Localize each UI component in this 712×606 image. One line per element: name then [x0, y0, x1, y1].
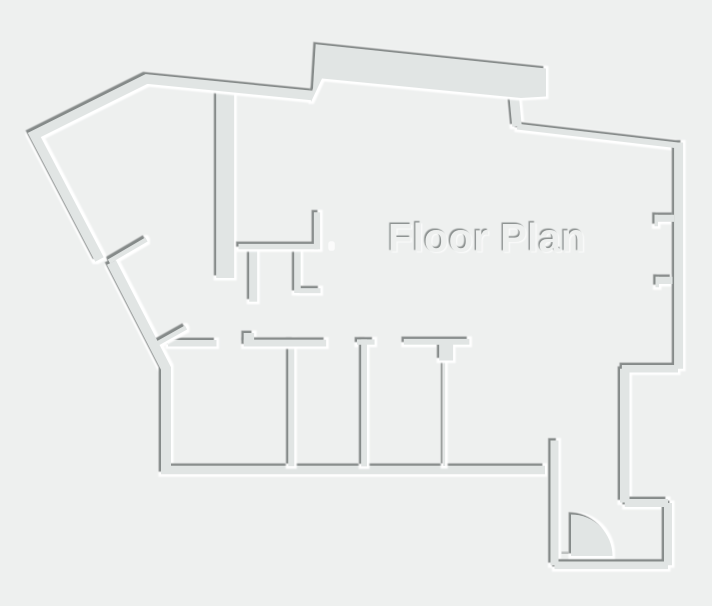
svg-text:Floor Plan: Floor Plan	[388, 217, 586, 261]
